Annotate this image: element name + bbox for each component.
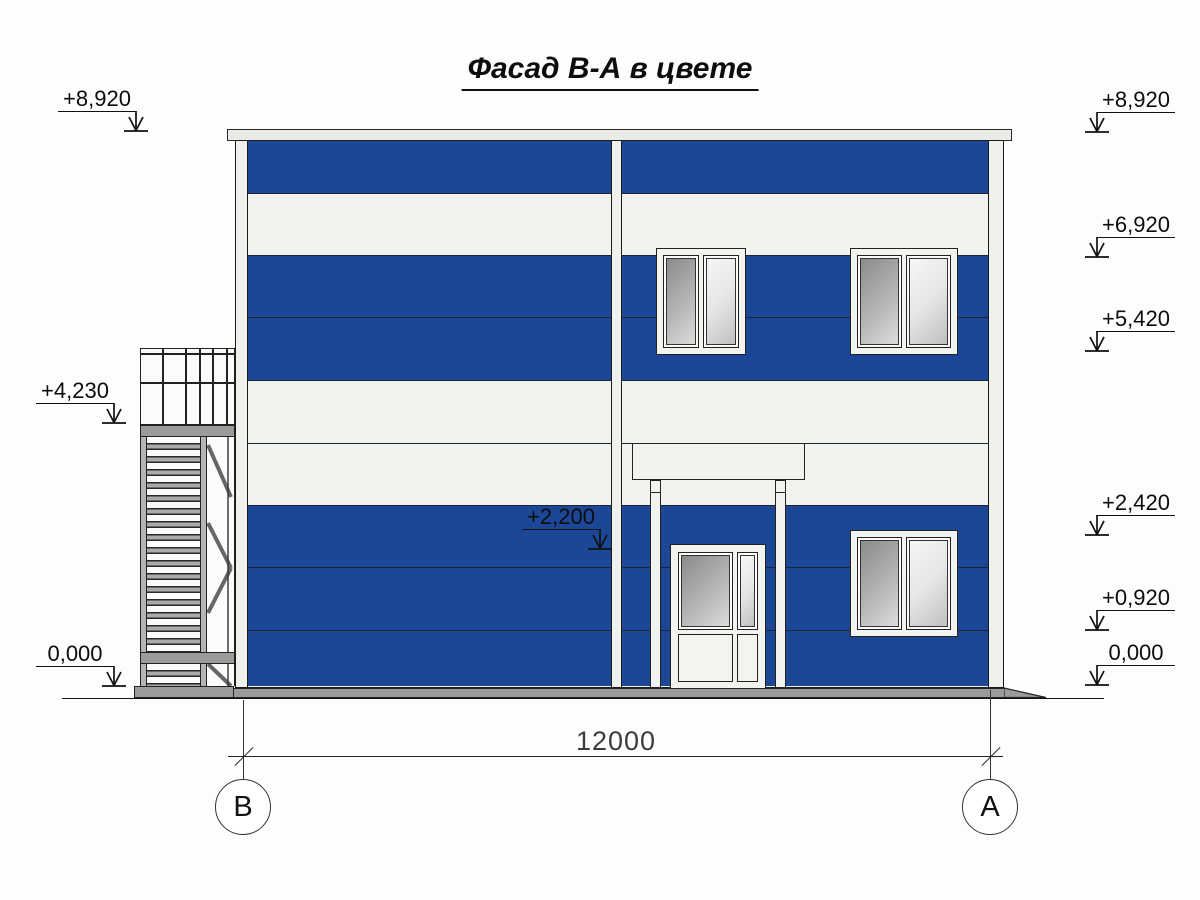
down-arrow-icon <box>1075 665 1119 691</box>
stair-truss-panel <box>207 664 235 686</box>
truss-brace-icon <box>207 664 235 686</box>
stair-truss-panel <box>207 437 235 652</box>
dimension-value: 12000 <box>516 726 716 757</box>
corner-pilaster-left <box>236 141 248 687</box>
stair-treads <box>147 664 200 686</box>
door-glazing <box>678 552 733 630</box>
building-plinth <box>233 688 1005 698</box>
center-pilaster <box>611 141 622 687</box>
stair-base-slab <box>134 686 234 698</box>
window-lower-right <box>850 530 958 637</box>
sidelight-glazing <box>737 552 758 630</box>
window-sash <box>703 255 739 348</box>
elevation-marker: +2,200 <box>522 504 600 530</box>
down-arrow-icon <box>1075 237 1119 263</box>
elevation-marker: +2,420 <box>1097 490 1175 516</box>
window-sash <box>663 255 699 348</box>
down-arrow-icon <box>1075 112 1119 138</box>
window-sash <box>906 537 951 630</box>
axis-label: А <box>980 791 999 824</box>
sidelight-bottom-panel <box>737 634 758 682</box>
axis-bubble-A: А <box>962 779 1018 835</box>
entrance-door <box>670 544 766 690</box>
stair-lower-beam <box>140 652 235 664</box>
window-upper-right <box>850 248 958 355</box>
elevation-value: +2,200 <box>522 504 600 530</box>
window-sash <box>857 537 902 630</box>
elevation-value: +8,920 <box>58 86 136 112</box>
elevation-value: +0,920 <box>1097 585 1175 611</box>
elevation-value: +8,920 <box>1097 87 1175 113</box>
elevation-marker: +5,420 <box>1097 306 1175 332</box>
down-arrow-icon <box>92 666 136 692</box>
door-bottom-panel <box>678 634 733 682</box>
elevation-marker: +8,920 <box>58 86 136 112</box>
stair-stringer <box>200 437 207 652</box>
elevation-value: 0,000 <box>1097 640 1175 666</box>
down-arrow-icon <box>92 403 136 429</box>
truss-brace-icon <box>207 437 235 652</box>
canopy-post-left <box>650 480 661 688</box>
elevation-value: +5,420 <box>1097 306 1175 332</box>
axis-extension-line-B <box>243 700 244 779</box>
stair-treads <box>147 437 200 652</box>
door-leaf <box>678 552 733 682</box>
stair-landing <box>140 425 235 437</box>
elevation-marker: +4,230 <box>36 378 114 404</box>
stair-stringer <box>200 664 207 686</box>
elevation-value: 0,000 <box>36 641 114 667</box>
door-sidelight <box>737 552 758 682</box>
window-upper-left <box>656 248 746 355</box>
ground-line <box>62 698 1104 699</box>
stair-stringer <box>140 664 147 686</box>
elevation-marker: +6,920 <box>1097 212 1175 238</box>
elevation-marker: 0,000 <box>36 641 114 667</box>
entrance-canopy <box>632 443 805 480</box>
window-sash <box>857 255 902 348</box>
corner-pilaster-right <box>988 141 1003 687</box>
down-arrow-icon <box>1075 331 1119 357</box>
window-sash <box>906 255 951 348</box>
elevation-value: +6,920 <box>1097 212 1175 238</box>
elevation-marker: +0,920 <box>1097 585 1175 611</box>
elevation-marker: +8,920 <box>1097 87 1175 113</box>
stair-stringer <box>140 437 147 652</box>
down-arrow-icon <box>578 529 622 555</box>
canopy-post-right <box>775 480 786 688</box>
elevation-marker: 0,000 <box>1097 640 1175 666</box>
down-arrow-icon <box>114 111 158 137</box>
facade-drawing-canvas: Фасад В-А в цвете <box>0 0 1200 900</box>
down-arrow-icon <box>1075 610 1119 636</box>
axis-label: В <box>233 791 252 824</box>
elevation-value: +4,230 <box>36 378 114 404</box>
elevation-value: +2,420 <box>1097 490 1175 516</box>
drawing-title: Фасад В-А в цвете <box>462 52 759 91</box>
stair-railing-cage <box>140 348 235 425</box>
axis-extension-line-A <box>990 690 991 779</box>
down-arrow-icon <box>1075 515 1119 541</box>
axis-bubble-B: В <box>215 779 271 835</box>
